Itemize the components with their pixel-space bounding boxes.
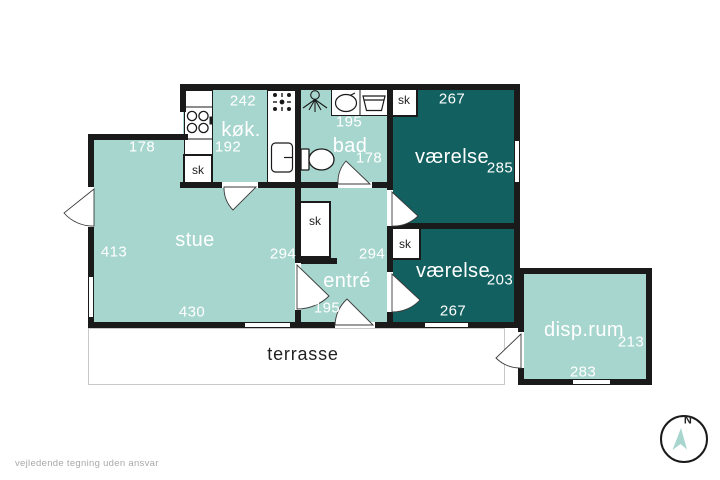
door-opening [88,187,94,227]
measurement-stue-left: 413 [101,245,127,260]
wall [468,322,520,328]
label-sk-entre: sk [309,215,321,227]
door-opening [335,322,375,328]
kitchen-counter-left [184,90,213,158]
wall [88,322,245,328]
closet-sk-entre [299,201,331,258]
measurement-stue-top: 178 [129,140,155,155]
window [245,322,290,328]
measurement-koekken-bottom: 192 [215,140,241,155]
measurement-entre-bottom: 195 [314,301,340,316]
label-koekken: køk. [221,120,260,140]
measurement-entre-right: 294 [359,247,385,262]
measurement-koekken-top: 242 [230,94,256,109]
wall [518,268,652,274]
label-sk-bad: sk [398,94,410,106]
wall [646,268,652,385]
wall [518,368,524,385]
wall [88,227,94,277]
bath-fixtures-box [331,88,388,116]
door-opening [222,182,258,188]
wall [387,312,393,322]
wall [180,182,222,188]
wall [375,322,425,328]
wall [295,258,337,264]
measurement-vaerelse2-bottom: 267 [440,304,466,319]
wall [180,84,186,112]
window [514,141,520,182]
wall [180,84,520,90]
measurement-disprum-bottom: 283 [570,365,596,380]
wall [387,226,393,272]
measurement-stue-bottom: 430 [179,305,205,320]
wall [387,84,393,190]
wall [514,84,520,141]
label-terrasse: terrasse [267,345,338,363]
label-vaerelse1: værelse [415,147,489,167]
door-opening [387,272,393,312]
label-vaerelse2: værelse [416,261,490,281]
wall [295,310,301,328]
measurement-bad-top: 195 [336,115,362,130]
wall [518,268,524,332]
label-disprum: disp.rum [544,320,624,340]
door-opening [295,263,301,310]
measurement-bad-right: 178 [356,151,382,166]
door-opening [387,190,393,226]
compass-north-label: N [684,416,692,427]
label-stue: stue [175,230,214,250]
wall [88,134,94,187]
wall [518,379,573,385]
label-sk-vaerelse2: sk [399,238,411,250]
wall [387,223,520,229]
door-opening [338,182,372,188]
door-opening [518,332,524,368]
measurement-vaerelse2-right: 203 [487,273,513,288]
kitchen-counter-right [267,90,297,185]
measurement-vaerelse1-right: 285 [487,161,513,176]
disclaimer-text: vejledende tegning uden ansvar [15,458,159,469]
window [88,277,94,317]
measurement-stue-right: 294 [270,247,296,262]
measurement-vaerelse1-top: 267 [439,92,465,107]
floor-plan: 242 køk. 192 178 sk 195 bad 178 sk 267 v… [0,0,720,480]
label-sk-kitchen: sk [192,164,204,176]
window [425,322,468,328]
wall [88,317,94,328]
wall [295,84,301,263]
label-entre: entré [323,271,371,291]
wall [295,182,338,188]
measurement-disprum-right: 213 [618,335,644,350]
